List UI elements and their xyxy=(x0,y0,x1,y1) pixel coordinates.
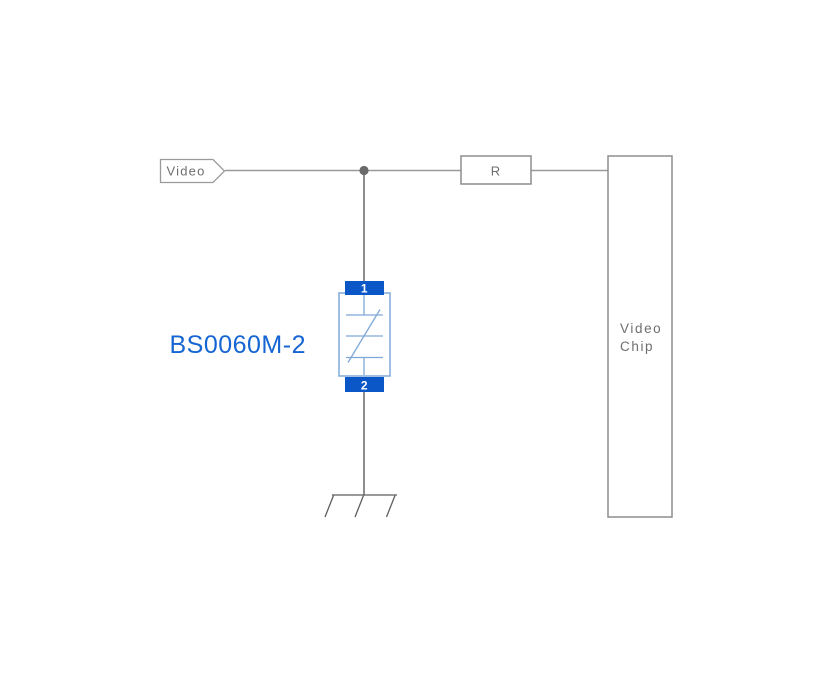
tvs-pin1-label: 1 xyxy=(361,282,368,296)
chip-label-line1: Video xyxy=(620,321,662,336)
part-number-label: BS0060M-2 xyxy=(169,331,306,359)
tvs-pin2-label: 2 xyxy=(361,379,368,393)
resistor-label: R xyxy=(491,164,502,179)
ground-slash-middle xyxy=(355,496,364,518)
ground-slash-left xyxy=(325,496,334,518)
tvs-component: 1 2 BS0060M-2 xyxy=(169,281,390,393)
video-net-label: Video xyxy=(166,164,205,179)
circuit-schematic: Video R Video Chip 1 2 BS0060M-2 xyxy=(0,0,832,675)
ground-symbol xyxy=(325,495,397,517)
junction-dot xyxy=(359,166,368,175)
video-chip-box xyxy=(608,156,672,517)
ground-slash-right xyxy=(387,496,396,518)
schematic-canvas: Video R Video Chip 1 2 BS0060M-2 xyxy=(0,0,832,675)
chip-label-line2: Chip xyxy=(620,339,654,354)
